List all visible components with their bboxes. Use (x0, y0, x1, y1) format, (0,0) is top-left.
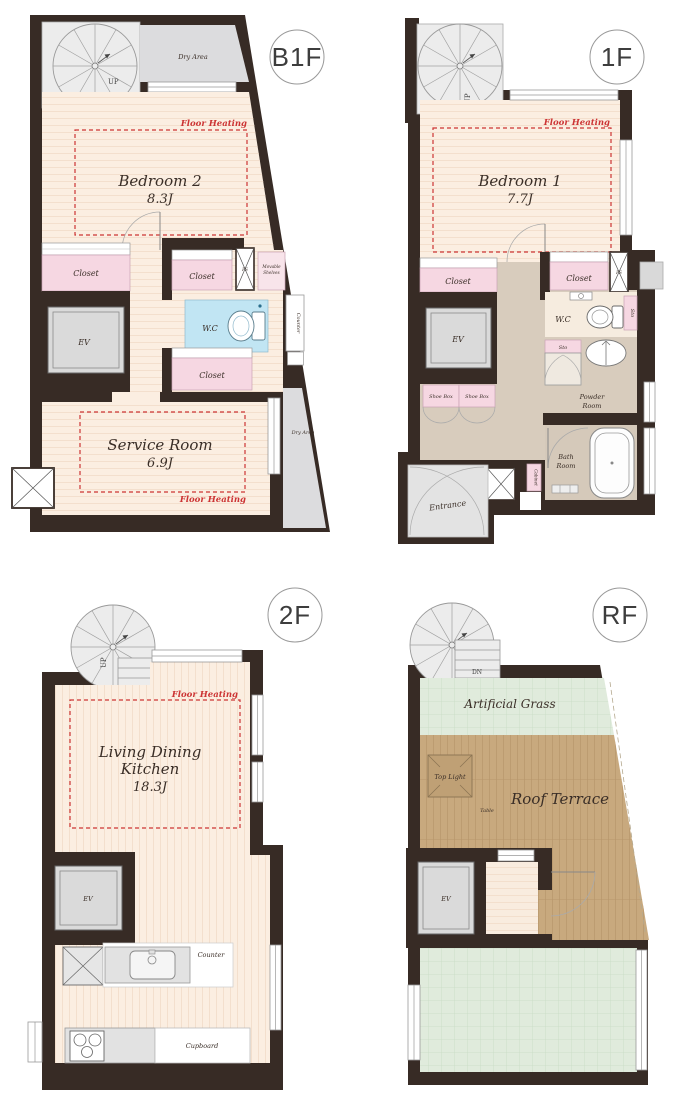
wall (420, 292, 497, 302)
wall (543, 413, 637, 425)
b1f-ps-label: PS (241, 267, 248, 272)
rf-stair-direction: DN (472, 669, 482, 676)
b1f-floor-heating-label: Floor Heating (180, 119, 247, 129)
closet-lower-label: Closet (199, 371, 225, 380)
washbasin-icon (586, 340, 626, 366)
spiral-staircase-icon (418, 24, 502, 108)
ldk-label-line1: Living Dining (98, 743, 202, 761)
b1f-stair-direction: UP (108, 78, 119, 86)
b1f-service-heating-label: Floor Heating (179, 495, 246, 505)
shaft-hatch (12, 468, 54, 508)
service-room-size: 6.9J (147, 456, 174, 471)
shaft-hatch (63, 947, 103, 985)
wall (162, 348, 172, 392)
artificial-grass-label: Artificial Grass (463, 697, 555, 711)
floor-plan-sheet: UP Dry Area Floor Heating Bedroom 2 8.3J (0, 0, 684, 1097)
window (644, 382, 655, 422)
stove-icon (70, 1031, 104, 1061)
2f-badge-label: 2F (279, 600, 311, 630)
roof-terrace-label: Roof Terrace (510, 790, 609, 808)
b1f-dry-area-top-label: Dry Area (177, 53, 208, 61)
wc-room: W.C (185, 300, 268, 352)
top-light-label: Top Light (434, 773, 466, 781)
b1f-wc-label: W.C (202, 324, 218, 333)
window (270, 945, 281, 1030)
door-opening (112, 392, 160, 402)
closet-lower: Closet (172, 348, 252, 390)
storage-upper: Sto (624, 296, 637, 330)
shower-stall (545, 353, 581, 385)
counter-strip: Counter (286, 295, 304, 365)
bath-room-line2: Room (556, 462, 576, 470)
toilet-icon (587, 306, 623, 328)
bedroom2-floorboards (42, 92, 274, 250)
shaft-hatch (487, 468, 515, 500)
bedroom2-label: Bedroom 2 (117, 172, 201, 190)
niche (520, 492, 541, 510)
sink-icon (570, 292, 592, 300)
b1f-counter-label: Counter (295, 313, 301, 334)
1f-floor-heating-label: Floor Heating (543, 118, 610, 128)
elevator: EV (418, 862, 474, 934)
bedroom1-label: Bedroom 1 (477, 172, 561, 190)
wall (162, 238, 172, 300)
window (252, 762, 263, 802)
rf-ev-label: EV (440, 895, 452, 903)
1f-sto-lower-label: Sto (559, 345, 567, 351)
movable-shelves-line2: Shelves (263, 270, 279, 275)
1f-closet-right-label: Closet (566, 274, 592, 283)
kitchen-counter: Counter (103, 943, 233, 987)
movable-shelves-line1: Movable (261, 264, 281, 269)
window (408, 985, 420, 1060)
service-room-label: Service Room (107, 436, 212, 454)
window (510, 90, 618, 100)
table-label: Table (480, 808, 494, 814)
cupboard-label: Cupboard (186, 1042, 219, 1050)
2f-floor-heating-label: Floor Heating (171, 690, 238, 700)
outdoor-unit (640, 262, 663, 289)
rf-floor-badge: RF (593, 588, 647, 642)
floor-plan-canvas: UP Dry Area Floor Heating Bedroom 2 8.3J (0, 0, 684, 1097)
floor-plan-rf: DN Artificial Grass Top Light Table Roof… (406, 588, 649, 1085)
1f-ev-label: EV (451, 335, 465, 344)
b1f-badge-label: B1F (272, 42, 323, 72)
pipe-shaft: PS (236, 248, 254, 290)
b1f-ev-label: EV (77, 338, 91, 347)
wall (538, 848, 552, 890)
window (28, 1022, 42, 1062)
window (498, 850, 534, 861)
wall (162, 238, 244, 250)
kitchen-sink-icon (130, 950, 175, 979)
b1f-dry-area-bottom (283, 388, 326, 528)
window (644, 428, 655, 494)
window (620, 140, 632, 235)
powder-room-line1: Powder (579, 393, 606, 401)
storage-lower: Sto (545, 340, 581, 353)
cabinet: Cabinet (527, 464, 541, 491)
1f-badge-label: 1F (601, 42, 633, 72)
closet-left: Closet (420, 258, 497, 292)
pipe-shaft: PS (610, 252, 628, 292)
rf-vestibule-floor (486, 862, 538, 934)
rf-badge-label: RF (602, 600, 639, 630)
shoe-box-right-label: Shoe Box (465, 394, 489, 400)
1f-floor-badge: 1F (590, 30, 644, 84)
2f-stair-direction: UP (100, 657, 108, 668)
bedroom1-size: 7.7J (507, 192, 534, 207)
b1f-dry-area-bottom-label: Dry Area (291, 430, 315, 436)
powder-room-line2: Room (582, 402, 602, 410)
entrance-room: Entrance (408, 465, 488, 537)
shoe-box-left-label: Shoe Box (429, 394, 453, 400)
1f-ps-label: PS (615, 270, 622, 275)
window (268, 398, 280, 474)
ldk-label-line2: Kitchen (120, 760, 180, 778)
2f-ev-label: EV (82, 895, 94, 903)
1f-closet-left-label: Closet (445, 277, 471, 286)
wall (486, 934, 552, 948)
elevator: EV (420, 302, 497, 374)
2f-floor-badge: 2F (268, 588, 322, 642)
closet-right: Closet (550, 252, 608, 290)
bath-counter (552, 485, 578, 493)
movable-shelves: Movable Shelves (258, 252, 285, 290)
window (252, 695, 263, 755)
cabinet-label: Cabinet (534, 469, 539, 486)
2f-counter-label: Counter (198, 951, 226, 959)
1f-sto-upper-label: Sto (629, 309, 635, 317)
floor-plan-b1f: UP Dry Area Floor Heating Bedroom 2 8.3J (12, 15, 330, 532)
closet-left: Closet (42, 243, 130, 291)
wall (42, 379, 130, 392)
1f-wc-label: W.C (555, 315, 571, 324)
window (148, 82, 236, 92)
bath-room-line1: Bath (557, 453, 573, 461)
closet-center-label: Closet (189, 272, 215, 281)
closet-center: Closet (172, 250, 232, 290)
bedroom2-size: 8.3J (147, 192, 174, 207)
b1f-floor-badge: B1F (270, 30, 324, 84)
ldk-size: 18.3J (133, 780, 168, 795)
wall (42, 291, 130, 301)
cupboard: Cupboard (155, 1028, 250, 1063)
floor-plan-2f: UP Floor Heating Living Dining Kitchen 1… (28, 588, 322, 1090)
closet-left-label: Closet (73, 269, 99, 278)
elevator: EV (42, 852, 135, 945)
wall (420, 374, 497, 384)
bathtub-icon (590, 428, 634, 498)
window (152, 650, 242, 662)
elevator: EV (42, 301, 130, 379)
floor-plan-1f: UP Floor Heating Bedroom 1 7.7J (398, 18, 663, 544)
artificial-grass-bottom-grid (420, 948, 637, 1072)
window (636, 950, 647, 1070)
top-light: Top Light (428, 755, 472, 797)
